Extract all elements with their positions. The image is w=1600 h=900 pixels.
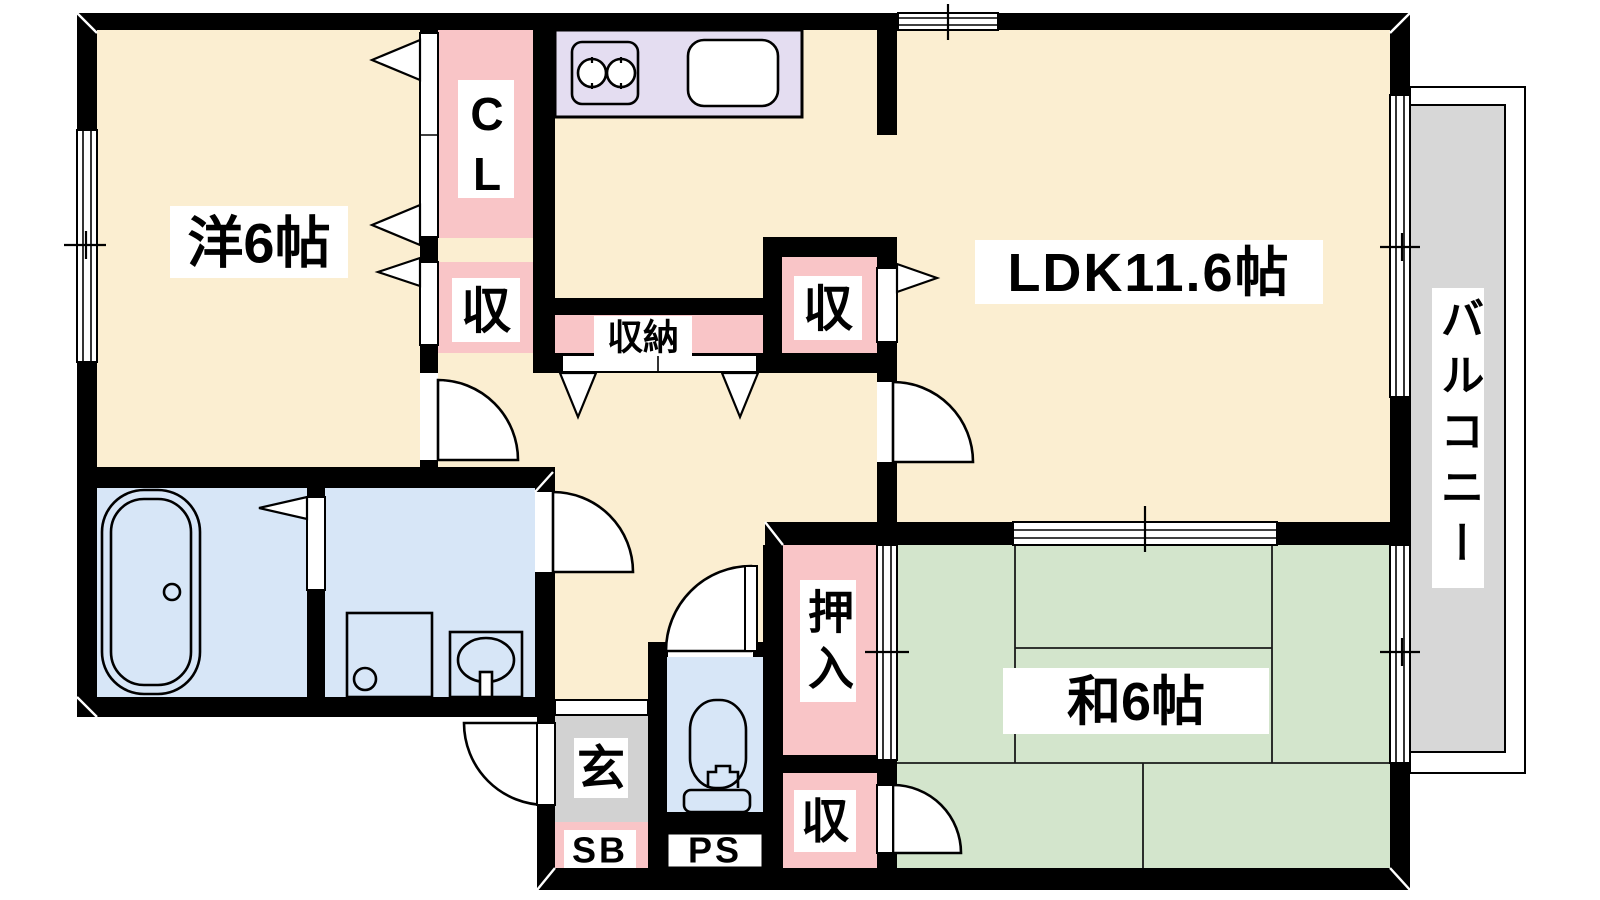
oshiire-label: 押入 xyxy=(802,588,854,700)
storage-tatami-door-leaf xyxy=(877,785,893,853)
wall-left xyxy=(77,13,97,717)
kitchen-sink-icon xyxy=(688,40,778,106)
ldk-label: LDK11.6帖 xyxy=(1007,243,1290,303)
storage-tatami-label: 収 xyxy=(801,796,849,849)
wall-storage-hall-top xyxy=(555,298,763,315)
wall-oshiire-west xyxy=(763,545,783,890)
storage-ldk-label: 収 xyxy=(803,281,853,337)
storage-hall-label: 収納 xyxy=(607,317,679,358)
stove-burner xyxy=(607,59,635,87)
bathroom-floor xyxy=(97,488,307,697)
storage-ldk-door xyxy=(877,268,897,342)
entrance-door-leaf xyxy=(537,723,555,805)
wall-storage-tatami-bottom xyxy=(877,853,897,890)
wall-bottom xyxy=(537,868,1410,890)
japanese-room-label: 和6帖 xyxy=(1067,672,1205,732)
washroom-floor xyxy=(325,488,535,697)
wall-hall-top xyxy=(77,467,555,488)
stove-burner xyxy=(578,59,606,87)
closet-label: CL xyxy=(461,88,513,208)
storage-hall-doors xyxy=(562,355,757,372)
floor-plan: 洋6帖 LDK11.6帖 和6帖 バルコニー CL 収 収納 収 押入 収 玄 … xyxy=(0,0,1600,900)
bathroom-door xyxy=(307,497,325,590)
wall-kitchen-stub xyxy=(877,13,897,135)
genkan-step xyxy=(555,700,648,715)
storage-west-label: 収 xyxy=(461,283,511,339)
wall-top xyxy=(77,13,1410,30)
vanity-faucet xyxy=(480,672,492,697)
pipe-space-label: PS xyxy=(688,830,742,871)
toilet-door-leaf xyxy=(745,566,757,651)
wall-genkan-east xyxy=(648,642,667,890)
genkan-label: 玄 xyxy=(577,743,625,796)
storage-west-door xyxy=(420,262,438,345)
wall-bath-bottom xyxy=(77,697,555,717)
wall-closet-east xyxy=(533,30,555,373)
shoe-box-label: SB xyxy=(572,830,628,871)
western-door-opening xyxy=(420,373,438,460)
western-room-label: 洋6帖 xyxy=(187,212,330,275)
balcony-label: バルコニー xyxy=(1434,296,1483,576)
wall-storage-ldk-top xyxy=(763,237,897,257)
window-japanese-balcony xyxy=(1390,545,1410,763)
floor-plan-canvas: 洋6帖 LDK11.6帖 和6帖 バルコニー CL 収 収納 収 押入 収 玄 … xyxy=(0,0,1600,900)
wall-storage-divider xyxy=(763,237,782,373)
